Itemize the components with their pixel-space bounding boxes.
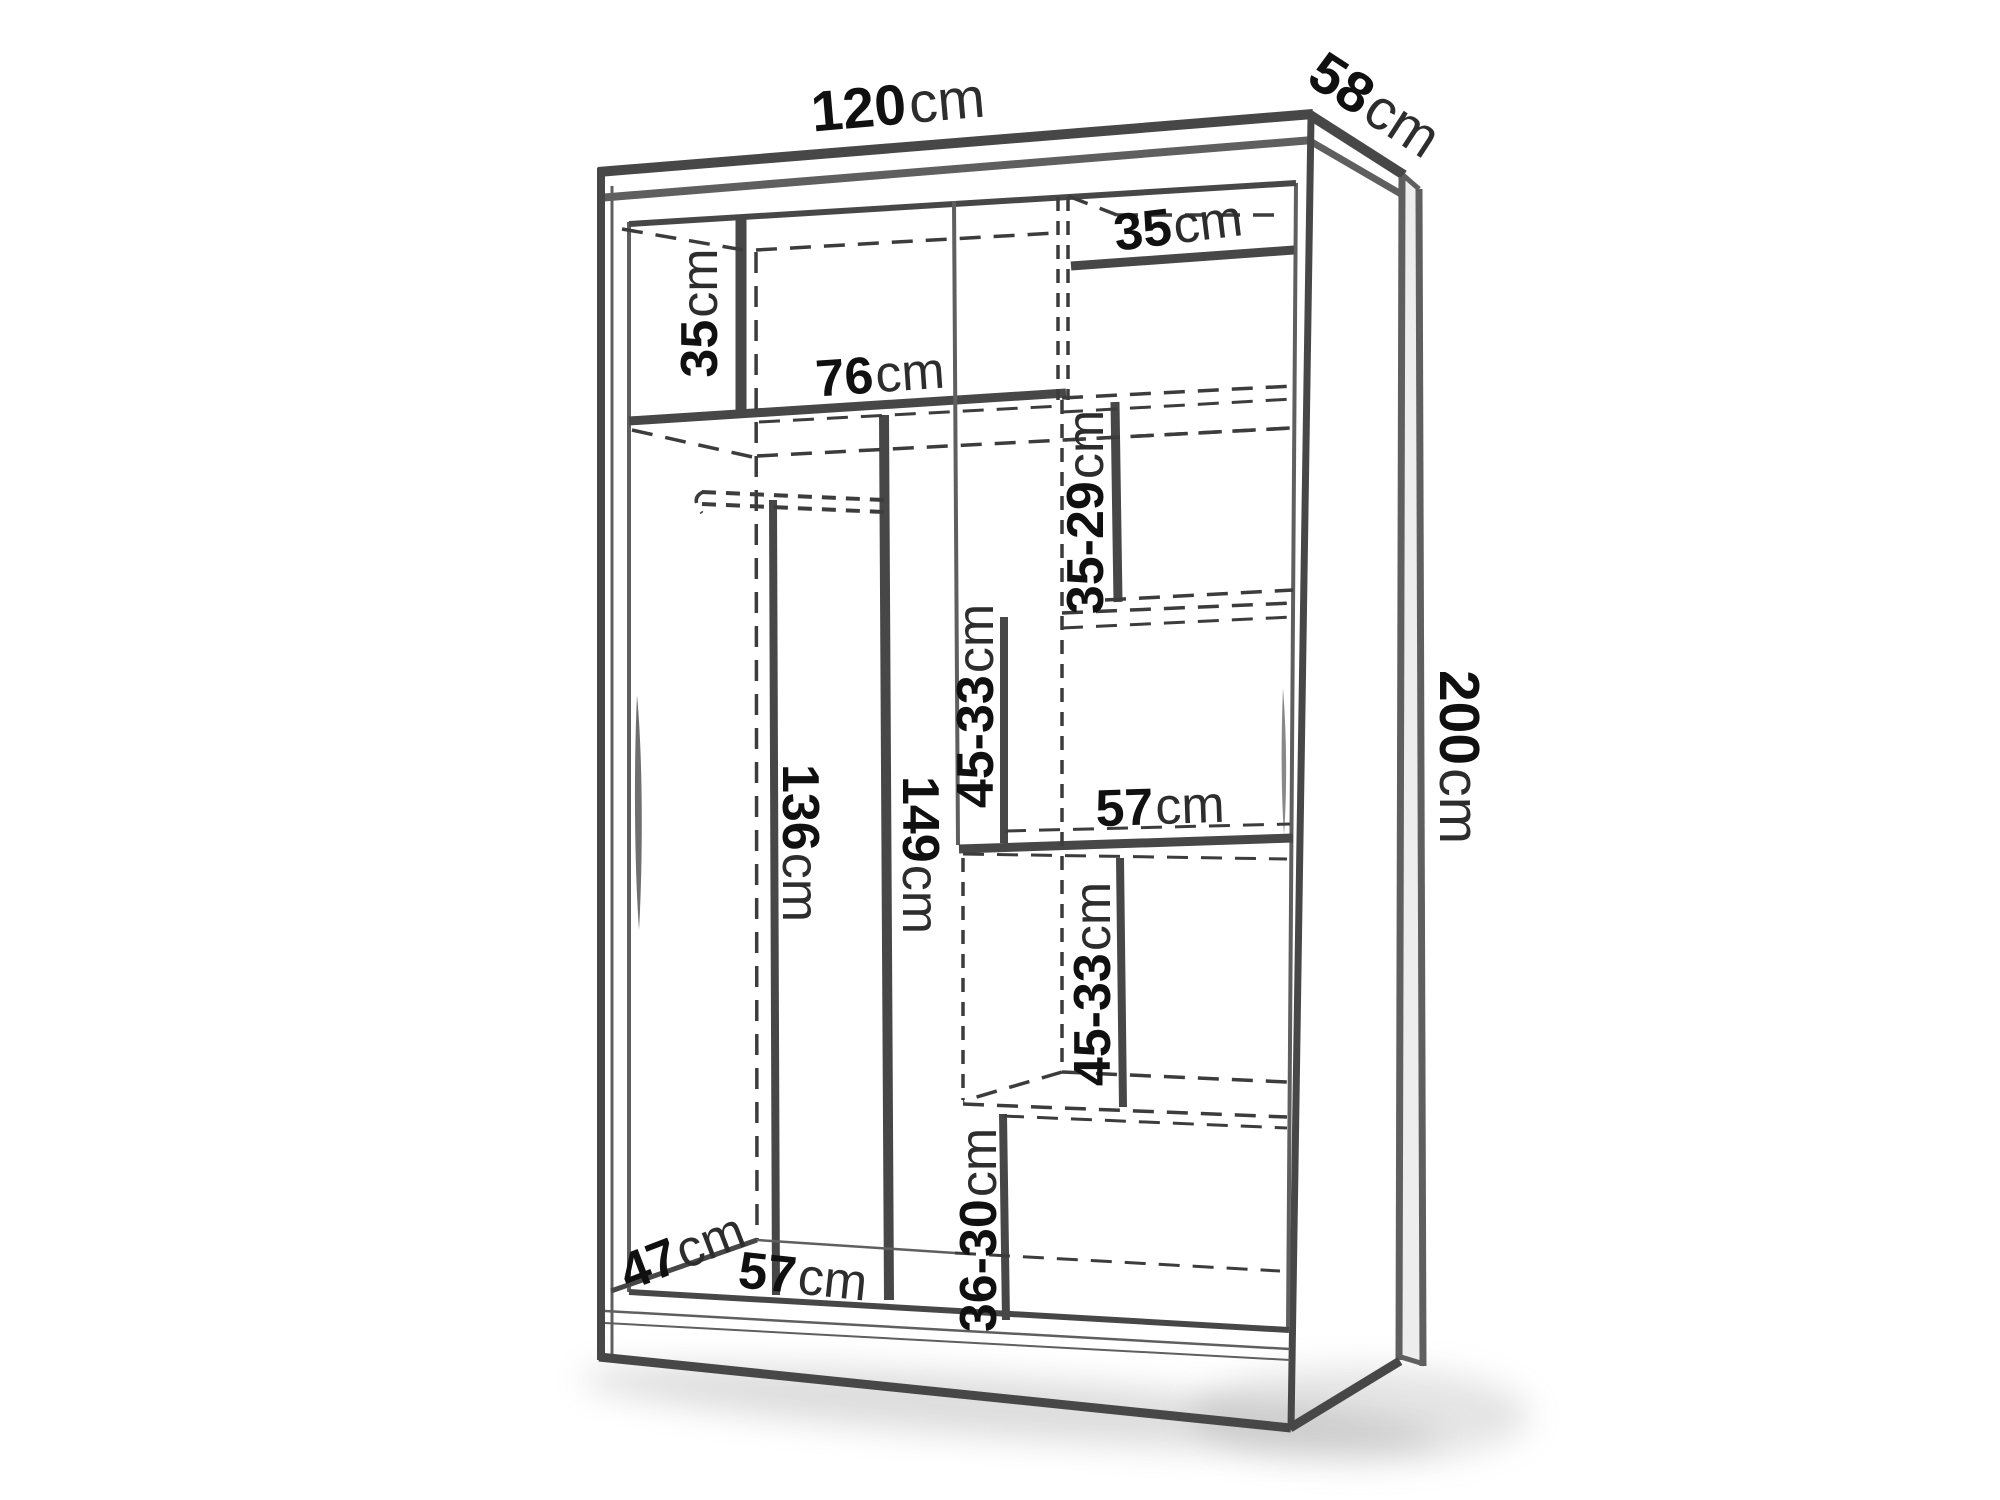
edge-right-back-panel: [1419, 189, 1423, 1366]
label-left-section-height: 149cm: [891, 776, 949, 934]
bar-35-29: [1115, 402, 1118, 602]
label-bottom-compartment: 36-30cm: [950, 1128, 1008, 1332]
wardrobe-diagram-svg: 120cm 58cm 200cm 35cm 76cm 35cm 35-29cm …: [0, 0, 2000, 1500]
edge-right-side-front: [1399, 177, 1402, 1360]
divider-center-tall: [884, 415, 889, 1300]
wardrobe-diagram: 120cm 58cm 200cm 35cm 76cm 35cm 35-29cm …: [0, 0, 2000, 1500]
label-height-right: 200cm: [1427, 670, 1491, 844]
label-right-middle-shelf: 57cm: [1094, 776, 1225, 838]
label-right-upper-compartment: 35-29cm: [1057, 410, 1115, 614]
label-upper-left-shelf: 35cm: [671, 248, 729, 377]
label-right-lower-compartment: 45-33cm: [1064, 882, 1122, 1086]
label-middle-compartment: 45-33cm: [947, 604, 1005, 808]
label-left-section-width: 76cm: [814, 342, 947, 409]
label-hanging-height: 136cm: [771, 764, 829, 922]
